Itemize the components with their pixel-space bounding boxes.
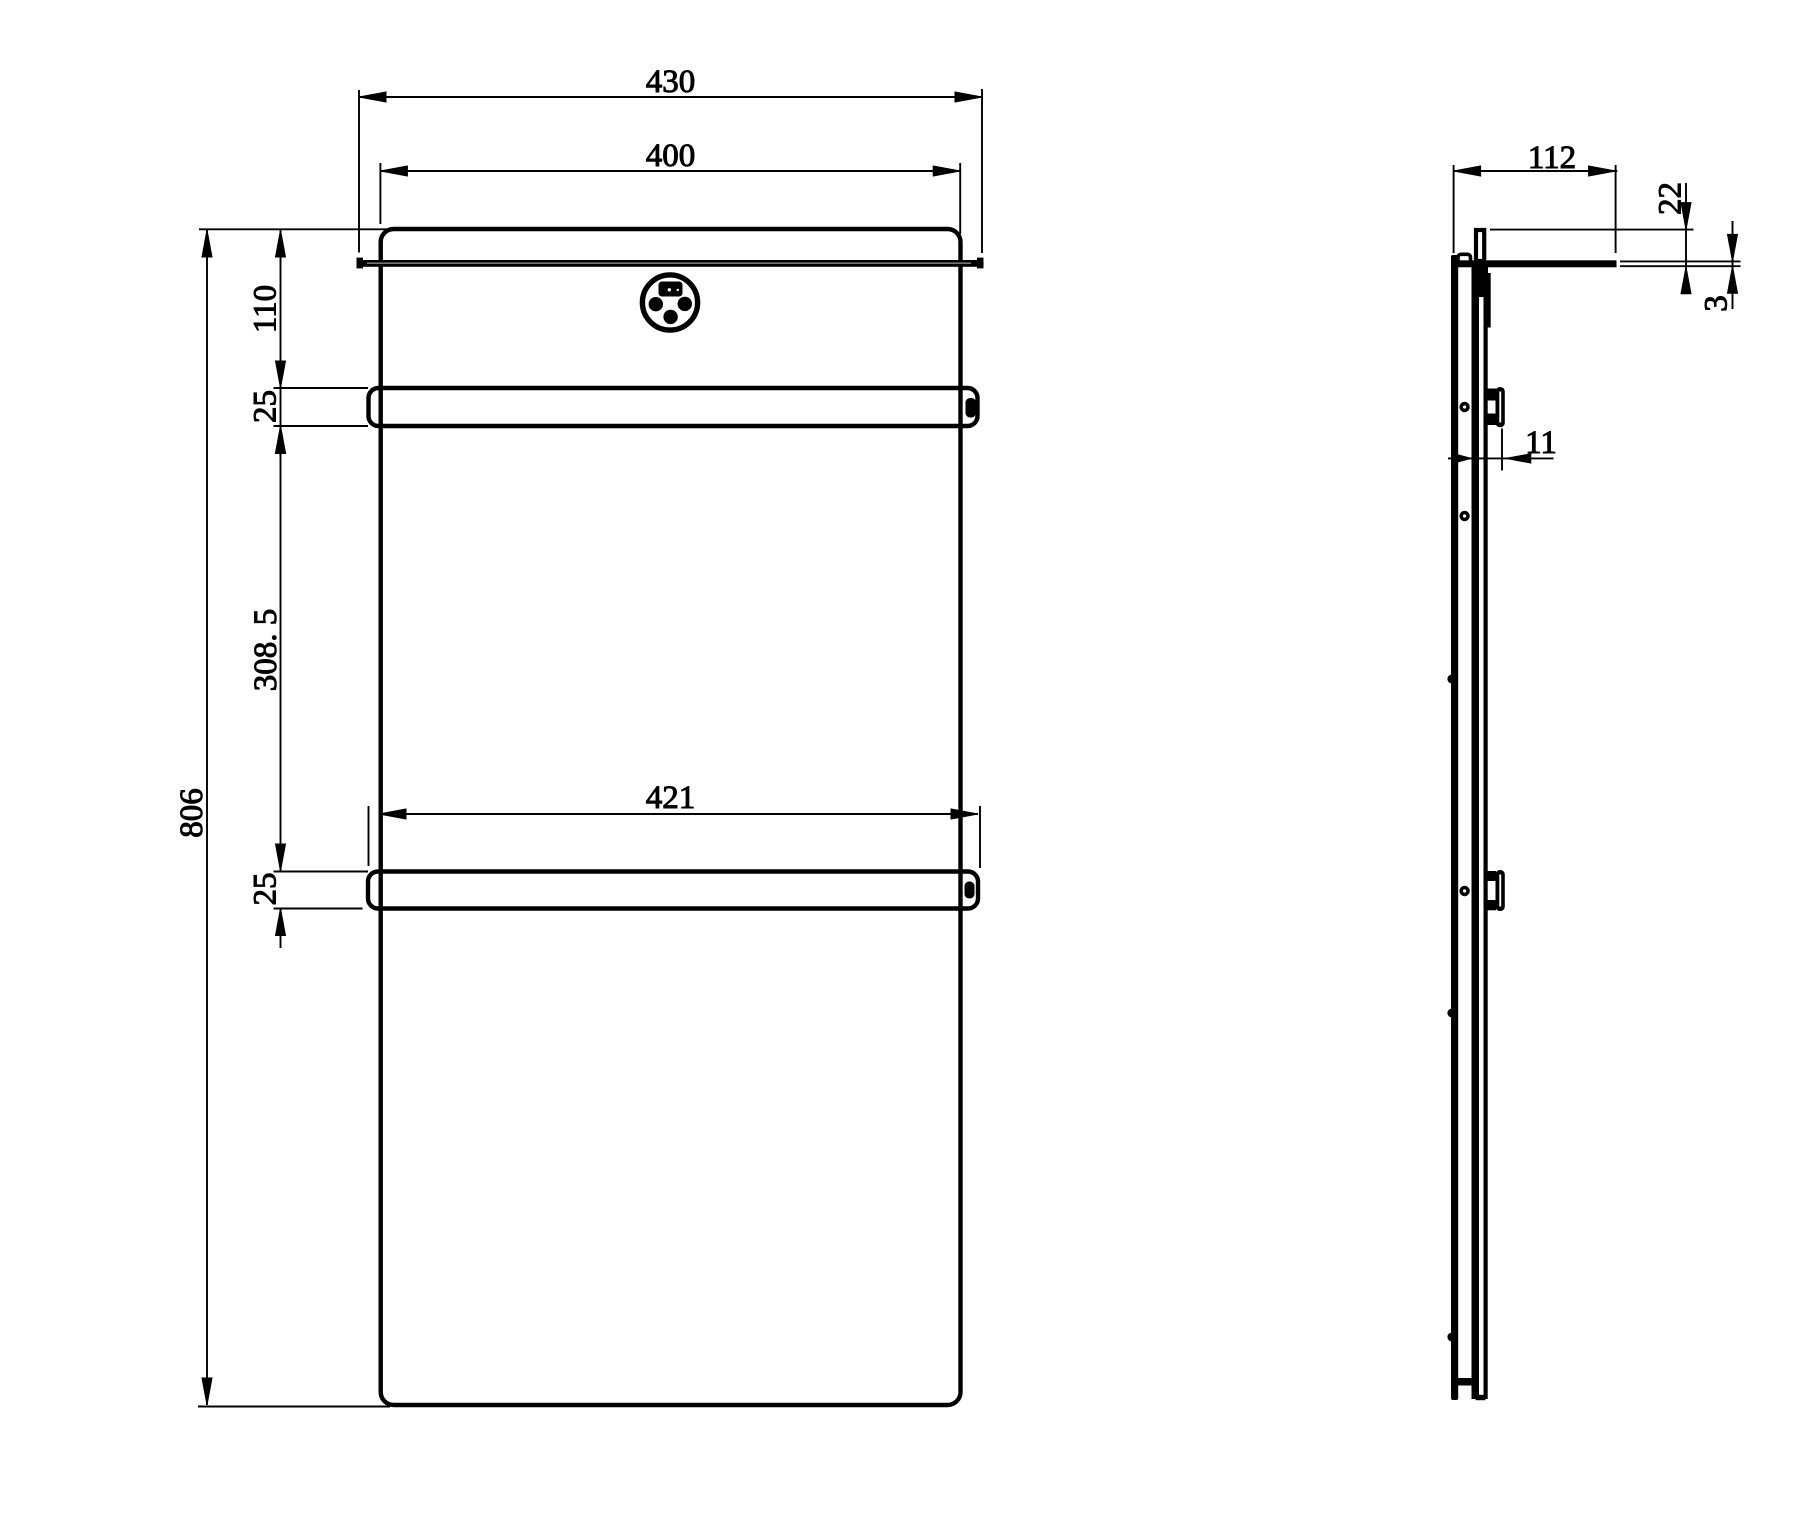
svg-text:308. 5: 308. 5	[248, 609, 284, 692]
svg-text:112: 112	[1528, 140, 1576, 176]
svg-text:430: 430	[646, 64, 696, 100]
svg-text:25: 25	[248, 873, 284, 906]
svg-text:22: 22	[1653, 182, 1689, 215]
svg-text:806: 806	[174, 788, 210, 838]
svg-text:11: 11	[1525, 425, 1557, 461]
svg-text:110: 110	[248, 285, 284, 333]
svg-text:3: 3	[1699, 295, 1735, 312]
svg-text:400: 400	[646, 138, 696, 174]
svg-text:25: 25	[248, 390, 284, 423]
svg-text:421: 421	[646, 780, 696, 816]
